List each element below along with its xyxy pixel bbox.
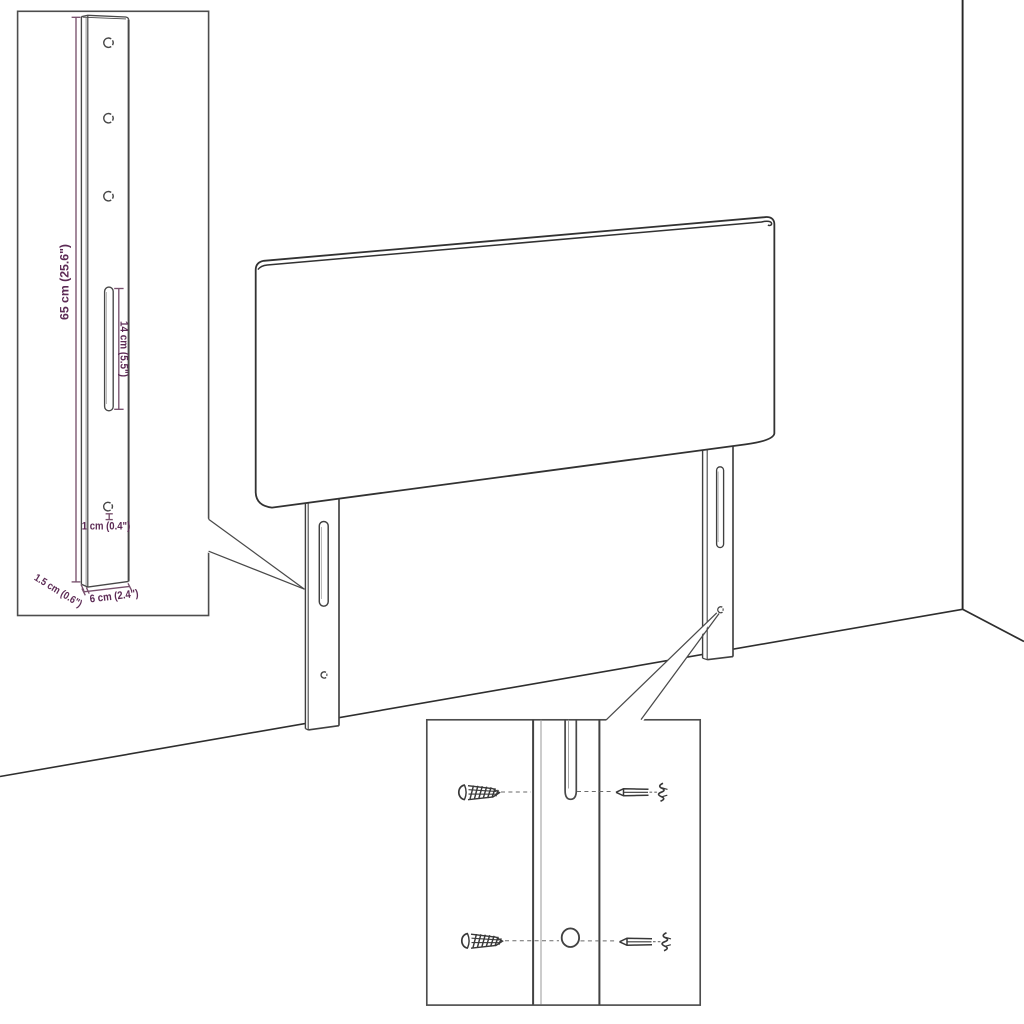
svg-text:65 cm (25.6"): 65 cm (25.6") [57, 244, 71, 320]
svg-text:1 cm (0.4"): 1 cm (0.4") [82, 520, 131, 532]
svg-text:14 cm (5.5"): 14 cm (5.5") [117, 321, 129, 377]
